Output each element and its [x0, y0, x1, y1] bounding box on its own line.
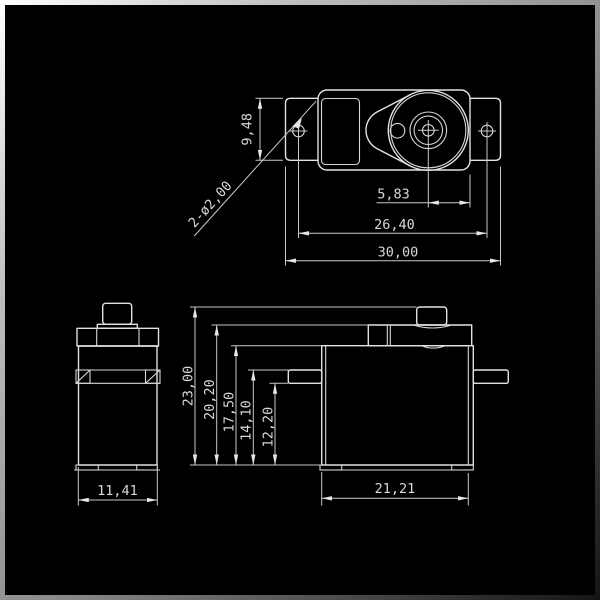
- front-view-body: [322, 346, 474, 465]
- dim-body-depth: 11,41: [78, 467, 157, 506]
- dim-overall-width-label: 30,00: [378, 244, 419, 260]
- dim-shaft-to-edge-label: 5,83: [377, 187, 410, 203]
- servo-dimension-drawing: 9,48 2-ø2,00 5,83 26,40: [5, 5, 595, 595]
- side-view: 11,41: [74, 303, 160, 505]
- top-view-label-area: [322, 99, 360, 165]
- dim-flange-top-height: 14,10: [239, 370, 255, 465]
- front-view-right-flange-tab: [473, 370, 508, 383]
- side-view-top-case: [77, 328, 159, 346]
- top-view: 9,48 2-ø2,00 5,83 26,40: [186, 90, 501, 266]
- dim-tab-height-label: 9,48: [240, 113, 256, 146]
- drawing-frame: 9,48 2-ø2,00 5,83 26,40: [0, 0, 600, 600]
- dim-collar-height: 20,20: [202, 325, 218, 465]
- dim-hole-spacing-label: 26,40: [374, 217, 415, 233]
- dim-body-width-label: 21,21: [375, 481, 416, 497]
- front-view-extension-lines: [190, 307, 417, 465]
- dim-body-width: 21,21: [322, 472, 469, 506]
- front-view-base: [320, 465, 473, 470]
- side-view-base: [74, 465, 160, 470]
- dim-case-height: 17,50: [221, 346, 237, 465]
- side-view-body: [79, 346, 158, 465]
- dim-body-depth-label: 11,41: [97, 483, 138, 499]
- side-view-flange: [76, 370, 160, 383]
- front-view-collar: [368, 325, 471, 346]
- dim-overall-width: 30,00: [286, 167, 501, 266]
- right-mounting-hole: [478, 122, 496, 140]
- drawing-canvas: 9,48 2-ø2,00 5,83 26,40: [5, 5, 595, 595]
- dim-overall-height-label: 23,00: [181, 366, 197, 407]
- dim-overall-height: 23,00: [181, 307, 197, 465]
- front-view-shaft-nub: [417, 307, 447, 325]
- front-view: 23,00 20,20 17,50 14,10 12,20: [181, 307, 509, 506]
- side-view-shaft-nub: [103, 303, 132, 324]
- dim-collar-height-label: 20,20: [202, 379, 218, 420]
- top-view-right-mounting-tab: [470, 98, 501, 160]
- dim-case-height-label: 17,50: [221, 392, 237, 433]
- dim-flange-bottom-height-label: 12,20: [260, 407, 276, 448]
- dim-tab-height: 9,48: [240, 98, 284, 160]
- dim-shaft-to-edge: 5,83: [377, 141, 471, 208]
- dim-flange-bottom-height: 12,20: [260, 383, 276, 465]
- front-view-left-flange-tab: [288, 370, 321, 383]
- dim-mounting-holes-callout-label: 2-ø2,00: [186, 178, 236, 231]
- idler-gear-hole: [390, 123, 405, 138]
- dim-flange-top-height-label: 14,10: [239, 400, 255, 441]
